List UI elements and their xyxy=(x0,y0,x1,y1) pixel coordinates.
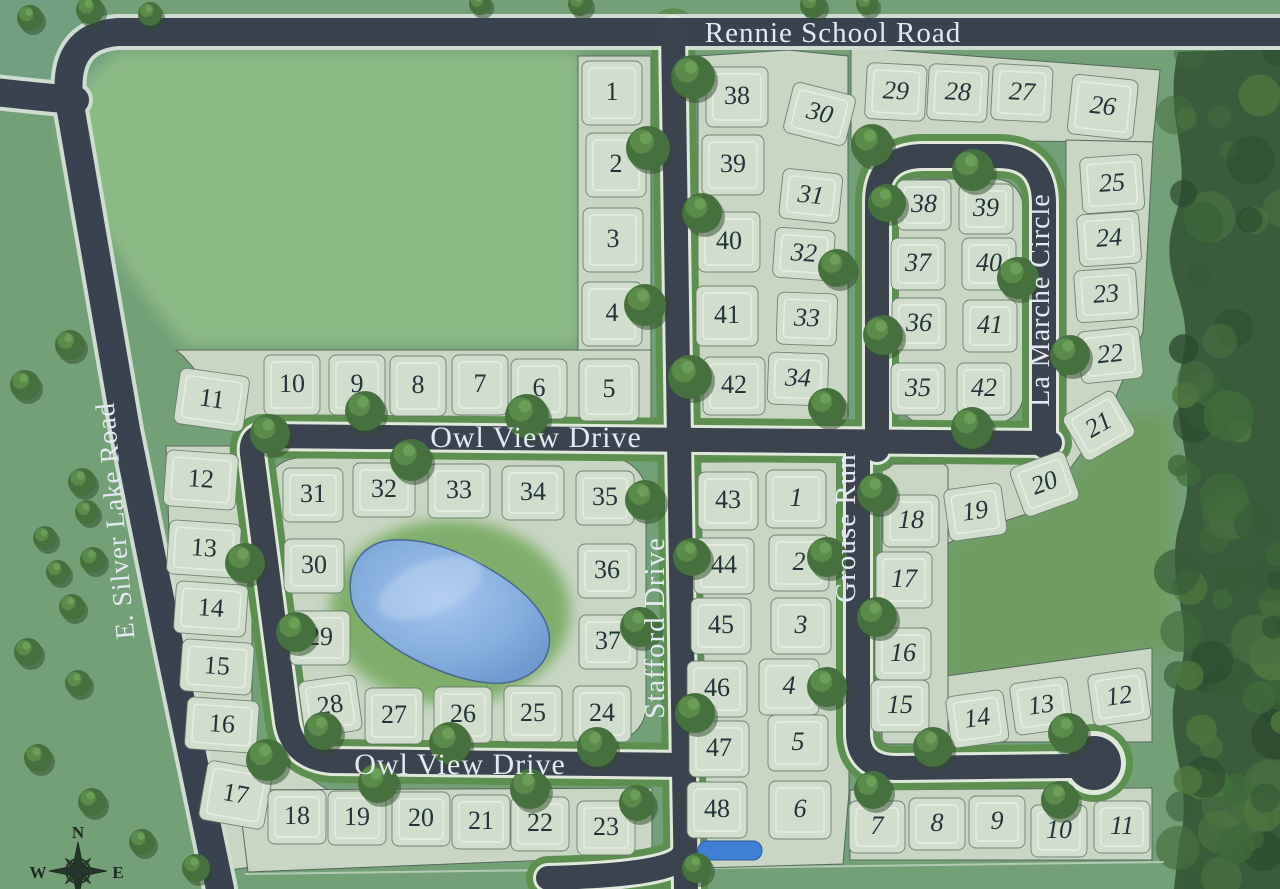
lot-parcel: 7 xyxy=(452,355,508,415)
tree-highlight xyxy=(964,413,976,425)
lot-parcel: 29 xyxy=(864,62,927,121)
lot-parcel: 14 xyxy=(173,581,248,638)
lot-parcel: 30 xyxy=(284,539,344,593)
tree-highlight xyxy=(85,0,93,8)
forest-canopy xyxy=(1227,136,1275,184)
lot-number-west-21: 21 xyxy=(468,806,494,835)
tree-highlight xyxy=(864,130,876,142)
forest-canopy xyxy=(1202,324,1237,359)
lot-number-west-34: 34 xyxy=(520,477,546,506)
lot-parcel: 1 xyxy=(766,470,826,528)
tree-highlight xyxy=(820,393,831,404)
tree-highlight xyxy=(965,155,977,167)
lot-number-west-31: 31 xyxy=(300,479,326,508)
forest-canopy xyxy=(1177,361,1215,399)
compass-center xyxy=(75,868,81,874)
lot-parcel: 25 xyxy=(504,686,562,742)
lot-parcel: 35 xyxy=(891,363,945,415)
tree-highlight xyxy=(23,642,31,650)
lot-number-east-13: 13 xyxy=(1026,688,1056,720)
tree-highlight xyxy=(687,698,698,709)
lot-number-west-17: 17 xyxy=(221,777,252,810)
lot-number-west-41: 41 xyxy=(714,300,740,329)
lot-parcel: 31 xyxy=(283,468,343,522)
tree-highlight xyxy=(145,5,152,12)
lot-parcel: 37 xyxy=(891,238,945,290)
lot-number-east-6: 6 xyxy=(794,794,807,823)
tree-highlight xyxy=(357,396,368,407)
road-asphalt-major xyxy=(0,92,75,100)
lot-parcel: 27 xyxy=(990,63,1053,122)
lot-number-west-15: 15 xyxy=(203,650,231,681)
tree-highlight xyxy=(64,334,72,342)
lot-number-west-45: 45 xyxy=(708,610,734,639)
forest-canopy xyxy=(1169,334,1199,364)
tree-highlight xyxy=(82,503,89,510)
lot-parcel: 19 xyxy=(943,482,1008,542)
forest-canopy xyxy=(1222,773,1252,803)
forest-canopy xyxy=(1156,826,1200,870)
lot-parcel: 5 xyxy=(579,359,639,421)
tree-highlight xyxy=(691,857,699,865)
lot-parcel: 11 xyxy=(1094,801,1150,853)
lot-number-west-20: 20 xyxy=(408,803,434,832)
lot-parcel: 33 xyxy=(776,292,838,346)
lot-number-east-1: 1 xyxy=(790,483,803,512)
tree-highlight xyxy=(237,548,248,559)
lot-number-east-27: 27 xyxy=(1008,76,1036,106)
lot-number-west-14: 14 xyxy=(197,592,225,623)
tree-highlight xyxy=(1053,786,1064,797)
lot-parcel: 33 xyxy=(428,464,490,518)
tree-highlight xyxy=(87,792,95,800)
lot-number-east-14: 14 xyxy=(962,701,992,733)
tree-highlight xyxy=(682,361,694,373)
lot-number-east-9: 9 xyxy=(991,806,1004,835)
tree-highlight xyxy=(869,478,880,489)
lot-number-east-2: 2 xyxy=(793,547,806,576)
lot-parcel: 26 xyxy=(1067,74,1139,141)
lot-parcel: 15 xyxy=(871,680,929,732)
lot-parcel: 15 xyxy=(179,639,254,696)
tree-highlight xyxy=(262,419,273,430)
lot-number-east-11: 11 xyxy=(1110,811,1134,840)
lot-number-east-24: 24 xyxy=(1095,222,1123,253)
forest-canopy xyxy=(1239,75,1280,117)
forest-canopy xyxy=(1208,105,1231,128)
tree-highlight xyxy=(866,776,877,787)
lot-number-west-25: 25 xyxy=(520,698,546,727)
lot-parcel: 42 xyxy=(957,363,1011,415)
forest-canopy xyxy=(1243,681,1276,714)
lot-number-east-37: 37 xyxy=(904,248,932,277)
lot-number-west-40: 40 xyxy=(716,226,742,255)
lot-parcel: 25 xyxy=(1079,154,1145,214)
lot-parcel: 8 xyxy=(390,356,446,416)
lot-parcel: 16 xyxy=(184,697,259,754)
lot-parcel: 45 xyxy=(691,598,751,654)
road-label: Grouse Run xyxy=(830,453,862,602)
forest-canopy xyxy=(1187,260,1212,285)
tree-highlight xyxy=(25,9,32,16)
lot-number-west-24: 24 xyxy=(589,698,615,727)
tree-highlight xyxy=(1060,718,1071,729)
lot-number-east-17: 17 xyxy=(891,564,918,593)
lot-parcel: 9 xyxy=(969,796,1025,848)
tree-highlight xyxy=(77,472,85,480)
lot-parcel: 28 xyxy=(926,63,989,122)
lot-number-west-7: 7 xyxy=(474,369,487,398)
lot-parcel: 23 xyxy=(1073,267,1138,323)
lot-number-west-23: 23 xyxy=(593,812,619,841)
lot-number-west-4: 4 xyxy=(606,298,619,327)
lot-number-west-44: 44 xyxy=(711,550,737,579)
road-label: La Marche Circle xyxy=(1025,193,1056,406)
lot-number-east-36: 36 xyxy=(905,308,932,337)
lot-parcel: 12 xyxy=(163,450,239,511)
tree-highlight xyxy=(442,728,454,740)
lot-parcel: 3 xyxy=(771,598,831,654)
lot-number-west-48: 48 xyxy=(704,794,730,823)
lot-number-west-3: 3 xyxy=(607,224,620,253)
lot-parcel: 5 xyxy=(768,715,828,771)
tree-highlight xyxy=(880,189,891,200)
road-label: Stafford Drive xyxy=(639,537,671,719)
lot-number-west-1: 1 xyxy=(606,77,619,106)
lot-parcel: 14 xyxy=(945,689,1010,749)
tree-highlight xyxy=(819,542,830,553)
tree-highlight xyxy=(685,61,697,73)
forest-canopy xyxy=(1160,611,1201,652)
tree-highlight xyxy=(1010,263,1022,275)
lot-parcel: 12 xyxy=(1087,667,1152,727)
lot-number-west-5: 5 xyxy=(603,374,616,403)
forest-canopy xyxy=(1212,589,1233,610)
forest-canopy xyxy=(1216,826,1254,864)
lot-number-east-12: 12 xyxy=(1104,679,1134,711)
lot-number-west-38: 38 xyxy=(724,81,750,110)
lot-number-west-13: 13 xyxy=(190,532,218,563)
tree-highlight xyxy=(288,617,299,628)
lot-parcel: 36 xyxy=(578,544,636,598)
tree-highlight xyxy=(1062,340,1073,351)
lot-parcel: 8 xyxy=(909,798,965,850)
forest-canopy xyxy=(1177,108,1198,129)
forest-canopy xyxy=(1200,473,1248,521)
lot-number-west-42: 42 xyxy=(721,370,747,399)
lot-number-east-7: 7 xyxy=(871,811,885,840)
road-label: Owl View Drive xyxy=(354,748,566,781)
lot-number-west-12: 12 xyxy=(187,463,215,494)
road-label: Rennie School Road xyxy=(705,17,961,49)
tree-highlight xyxy=(637,485,648,496)
lot-number-west-10: 10 xyxy=(279,369,305,398)
lot-parcel: 27 xyxy=(365,688,423,744)
lot-number-west-27: 27 xyxy=(381,700,407,729)
lot-parcel: 21 xyxy=(452,795,510,849)
lot-number-west-37: 37 xyxy=(595,626,621,655)
tree-highlight xyxy=(316,717,327,728)
forest-canopy xyxy=(1154,549,1200,595)
lot-parcel: 1 xyxy=(582,61,642,125)
lot-parcel: 41 xyxy=(696,286,758,346)
tree-highlight xyxy=(33,748,41,756)
forest-canopy xyxy=(1179,201,1224,246)
lot-number-west-8: 8 xyxy=(412,370,425,399)
forest-canopy xyxy=(1200,735,1223,758)
site-plan-svg: 1234567891011121314151617181920212223242… xyxy=(0,0,1280,889)
tree-highlight xyxy=(403,445,415,457)
lot-number-east-23: 23 xyxy=(1092,278,1120,309)
lot-number-east-33: 33 xyxy=(792,303,820,333)
tree-highlight xyxy=(88,551,95,558)
lot-number-east-8: 8 xyxy=(931,808,944,837)
lot-parcel: 24 xyxy=(1076,211,1141,267)
lot-number-west-2: 2 xyxy=(610,149,623,178)
lot-number-east-38: 38 xyxy=(910,189,937,218)
lot-number-east-35: 35 xyxy=(904,373,931,402)
lot-number-west-11: 11 xyxy=(198,382,227,414)
lot-parcel: 48 xyxy=(687,782,747,838)
tree-highlight xyxy=(875,320,886,331)
lot-number-west-19: 19 xyxy=(344,802,370,831)
lot-number-east-39: 39 xyxy=(972,193,999,222)
forest-canopy xyxy=(1175,661,1204,690)
lot-number-east-31: 31 xyxy=(796,179,826,211)
lot-number-west-18: 18 xyxy=(284,801,310,830)
lot-number-east-19: 19 xyxy=(960,494,990,526)
lot-number-east-42: 42 xyxy=(971,373,997,402)
lot-number-west-32: 32 xyxy=(371,474,397,503)
lot-number-east-16: 16 xyxy=(890,638,916,667)
lot-number-west-35: 35 xyxy=(592,482,618,511)
lot-number-west-43: 43 xyxy=(715,485,741,514)
tree-highlight xyxy=(685,543,696,554)
tree-highlight xyxy=(637,290,649,302)
lot-number-west-47: 47 xyxy=(706,733,732,762)
lot-number-east-3: 3 xyxy=(794,610,808,639)
forest-canopy xyxy=(1251,783,1280,812)
tree-highlight xyxy=(73,674,80,681)
tree-highlight xyxy=(519,400,531,412)
lot-number-east-26: 26 xyxy=(1089,90,1118,122)
lot-number-east-15: 15 xyxy=(887,690,913,719)
lot-parcel: 31 xyxy=(778,168,843,224)
lot-number-east-29: 29 xyxy=(882,75,909,105)
road-asphalt xyxy=(673,30,686,889)
compass-letter-w: W xyxy=(30,863,47,882)
site-plan-map: 1234567891011121314151617181920212223242… xyxy=(0,0,1280,889)
tree-highlight xyxy=(191,858,199,866)
tree-highlight xyxy=(67,598,74,605)
forest-canopy xyxy=(1174,766,1202,794)
forest-canopy xyxy=(1176,462,1201,487)
lot-number-east-22: 22 xyxy=(1096,338,1125,370)
lot-number-west-33: 33 xyxy=(446,475,472,504)
forest-canopy xyxy=(1203,390,1254,441)
lot-parcel: 41 xyxy=(963,300,1017,352)
lot-parcel: 3 xyxy=(583,208,643,272)
tree-highlight xyxy=(819,672,830,683)
tree-highlight xyxy=(259,745,271,757)
lot-number-west-36: 36 xyxy=(594,555,620,584)
lot-parcel: 6 xyxy=(769,781,831,839)
lot-parcel: 43 xyxy=(698,472,758,530)
lot-number-west-30: 30 xyxy=(301,550,327,579)
tree-highlight xyxy=(19,374,27,382)
lot-number-east-18: 18 xyxy=(898,505,924,534)
tree-highlight xyxy=(925,732,936,743)
lot-parcel: 39 xyxy=(702,135,764,195)
lot-number-east-5: 5 xyxy=(792,727,805,756)
lot-parcel: 11 xyxy=(173,367,250,432)
tree-highlight xyxy=(694,198,705,209)
lot-number-west-16: 16 xyxy=(208,708,236,739)
lot-number-east-25: 25 xyxy=(1098,167,1126,198)
compass-letter-n: N xyxy=(72,823,85,842)
tree-highlight xyxy=(137,833,144,840)
tree-highlight xyxy=(40,529,47,536)
lot-parcel: 20 xyxy=(392,792,450,846)
lot-number-east-4: 4 xyxy=(783,671,796,700)
tree-highlight xyxy=(53,563,60,570)
tree-highlight xyxy=(630,790,640,800)
small-pond xyxy=(698,841,762,860)
lot-number-east-41: 41 xyxy=(977,310,1003,339)
lot-number-east-32: 32 xyxy=(789,237,818,268)
lot-parcel: 18 xyxy=(268,790,326,844)
compass-letter-e: E xyxy=(112,863,123,882)
tree-highlight xyxy=(589,732,600,743)
road-label: Owl View Drive xyxy=(430,421,642,454)
tree-highlight xyxy=(869,602,880,613)
lot-number-west-39: 39 xyxy=(720,149,746,178)
lot-number-west-46: 46 xyxy=(704,673,730,702)
lot-parcel: 10 xyxy=(264,355,320,415)
tree-highlight xyxy=(830,254,841,265)
forest-canopy xyxy=(1236,207,1262,233)
lot-parcel: 34 xyxy=(502,466,564,520)
lot-number-east-28: 28 xyxy=(944,76,971,106)
tree-highlight xyxy=(640,132,652,144)
lot-number-east-34: 34 xyxy=(783,363,811,393)
